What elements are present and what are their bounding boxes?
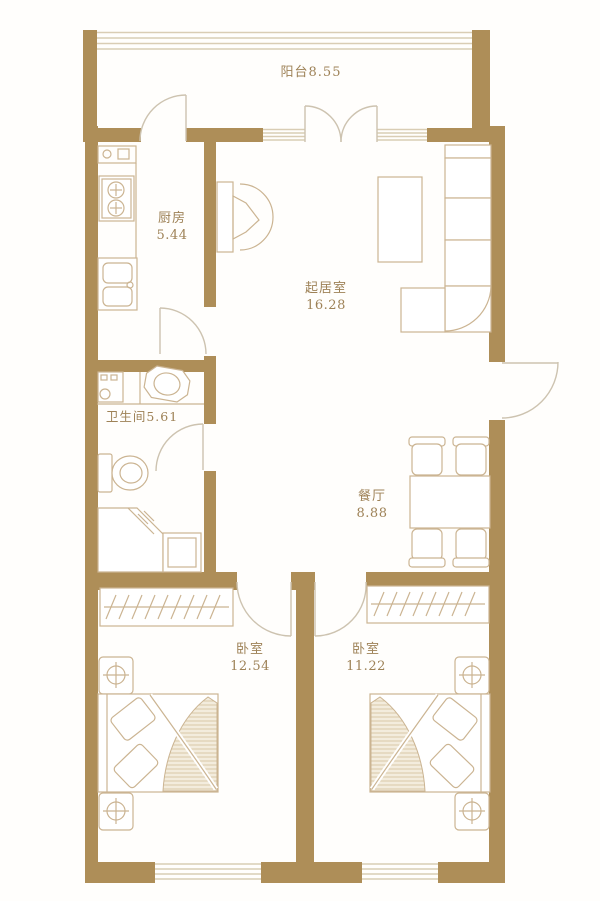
toilet-icon (98, 454, 148, 492)
living-balcony-windows (263, 130, 427, 141)
wardrobe-left-icon (100, 588, 233, 626)
balcony-kitchen-door (140, 95, 186, 141)
nightstand-icon (455, 657, 489, 694)
stove-icon (99, 176, 134, 221)
kitchen-sink-icon (98, 258, 137, 310)
room-label-dining: 餐厅 8.88 (357, 488, 388, 522)
room-label-kitchen: 厨房 5.44 (157, 210, 188, 244)
room-label-bedroom-right: 卧室 11.22 (346, 641, 386, 675)
entry-door (502, 362, 558, 418)
balcony-top-window (97, 33, 472, 50)
balcony-french-door (305, 106, 377, 142)
nightstand-icon (99, 657, 133, 694)
nightstand-icon (455, 793, 489, 830)
bathroom-door (156, 424, 203, 471)
shower-icon (98, 508, 201, 572)
room-label-living: 起居室 16.28 (305, 280, 347, 314)
bedroom-right-door (315, 582, 366, 636)
dining-table-icon (410, 476, 490, 528)
room-label-balcony: 阳台8.55 (281, 64, 342, 81)
floor-plan: 阳台8.55 厨房 5.44 起居室 16.28 卫生间5.61 餐厅 8.88… (0, 0, 600, 901)
washing-machine-icon (98, 372, 123, 402)
wardrobe-right-icon (367, 586, 489, 623)
floorplan-drawing (0, 0, 600, 901)
bed-right-icon (370, 694, 490, 792)
kitchen-door (160, 308, 206, 354)
nightstand-icon (99, 793, 133, 830)
room-label-bedroom-left: 卧室 12.54 (230, 641, 270, 675)
tv-stand-icon (217, 182, 273, 252)
bed-left-icon (98, 694, 218, 792)
room-label-bathroom: 卫生间5.61 (106, 408, 178, 425)
coffee-table-icon (378, 177, 422, 262)
bedroom-left-door (237, 582, 291, 636)
